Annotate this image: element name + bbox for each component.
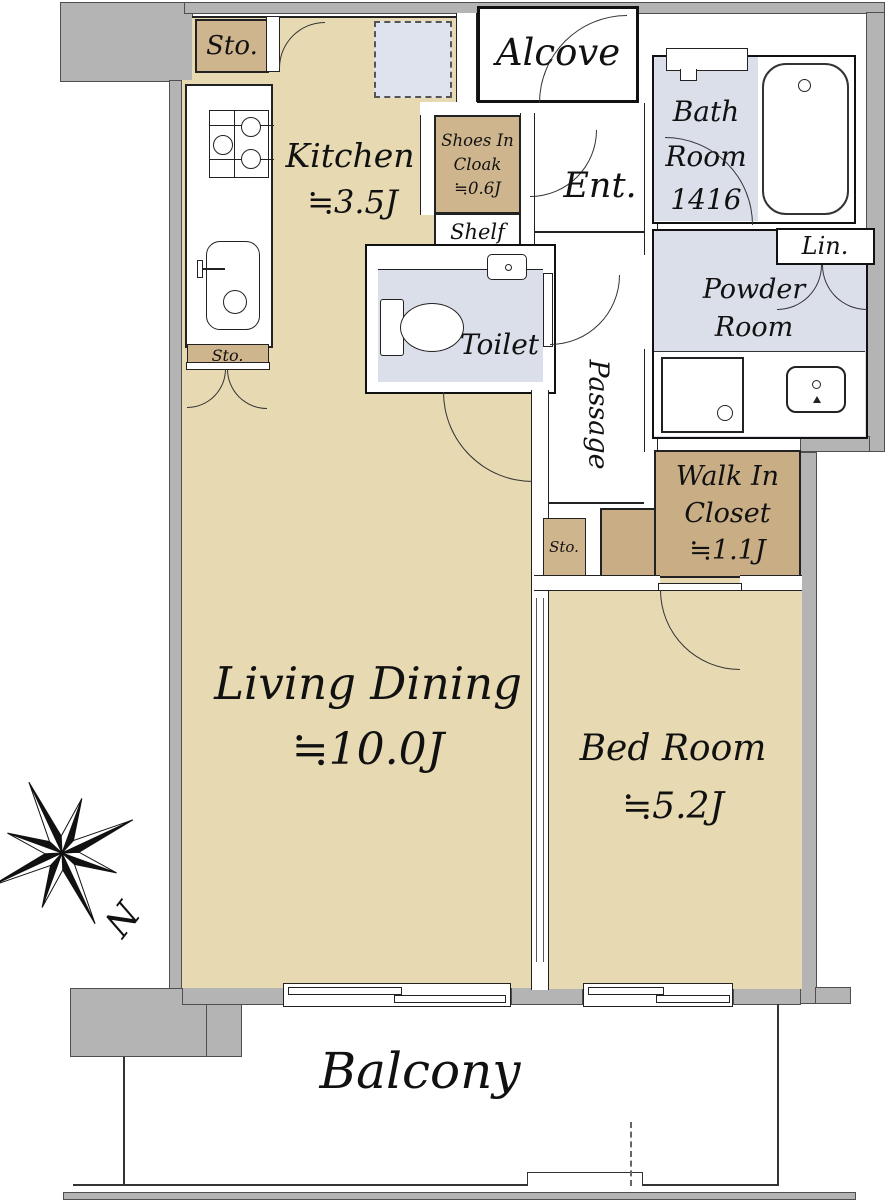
bathroom-line1: Bath — [656, 97, 756, 127]
powder-line2: Room — [654, 313, 854, 342]
bathroom-counter-tab — [680, 69, 697, 81]
bedroom-name: Bed Room — [558, 730, 788, 769]
kitchen-size: ≒3.5J — [260, 185, 445, 220]
wall-top-left-block — [60, 2, 193, 82]
refrigerator-space — [374, 21, 452, 98]
vanity-sink-icon — [786, 366, 846, 413]
linen-label: Lin. — [778, 230, 872, 262]
storage-top-label: Sto. — [197, 21, 267, 71]
kitchen-door-leaf — [266, 16, 280, 72]
living-balcony-window — [283, 983, 511, 1007]
wall-bedroom-top-b — [740, 575, 802, 591]
wall-bottom-left-ext — [206, 1004, 242, 1057]
living-size: ≒10.0J — [208, 726, 528, 774]
kitchen-sink-icon — [206, 241, 260, 330]
bathtub-icon — [762, 63, 849, 215]
wall-passage-bottom-line — [549, 502, 644, 504]
bedroom-balcony-window — [583, 983, 733, 1007]
living-bedroom-partition — [531, 390, 549, 990]
floor-plan: Sto. Sto. Alcove Ent. Shoes In Cloak ≒0.… — [0, 0, 885, 1200]
wic-line2: Closet — [656, 499, 799, 528]
wall-living-bottom-a — [182, 986, 284, 1005]
wall-kitchen-alcove — [456, 13, 477, 104]
storage-small-box: Sto. — [543, 518, 586, 578]
balcony-right-line — [777, 1004, 779, 1186]
wall-bedroom-bottom-right — [815, 987, 851, 1004]
wall-left-column — [169, 80, 182, 990]
bedroom-floor — [541, 577, 802, 989]
toilet-sink-icon — [487, 254, 527, 280]
balcony-divider — [630, 1122, 632, 1186]
toilet-room-box: Toilet — [365, 244, 556, 394]
wall-bedroom-top-a — [534, 575, 660, 591]
cloak-size: ≒0.6J — [436, 180, 519, 198]
passage-label: Passage — [583, 335, 612, 495]
linen-box: Lin. — [776, 228, 875, 265]
balcony-label: Balcony — [260, 1044, 580, 1098]
balcony-left-line — [123, 1057, 125, 1186]
walk-in-closet-main: Walk In Closet ≒1.1J — [654, 450, 801, 578]
washing-machine-space-icon — [661, 357, 744, 433]
balcony-bottom-line — [73, 1184, 778, 1186]
wic-size: ≒1.1J — [656, 536, 799, 565]
storage-small-label: Sto. — [544, 519, 584, 576]
balcony-step — [527, 1172, 643, 1186]
storage-top-box: Sto. — [195, 19, 269, 73]
wic-line1: Walk In — [656, 462, 799, 491]
kitchen-name: Kitchen — [250, 138, 450, 174]
sliding-door-symbol — [536, 598, 544, 962]
site-boundary-bottom — [63, 1192, 856, 1200]
living-name: Living Dining — [208, 660, 528, 709]
entrance-label: Ent. — [540, 168, 660, 206]
bedroom-size: ≒5.2J — [558, 788, 788, 827]
bathroom-counter — [666, 48, 748, 71]
walk-in-closet-ext — [600, 508, 656, 578]
entrance-step-line — [534, 231, 645, 233]
